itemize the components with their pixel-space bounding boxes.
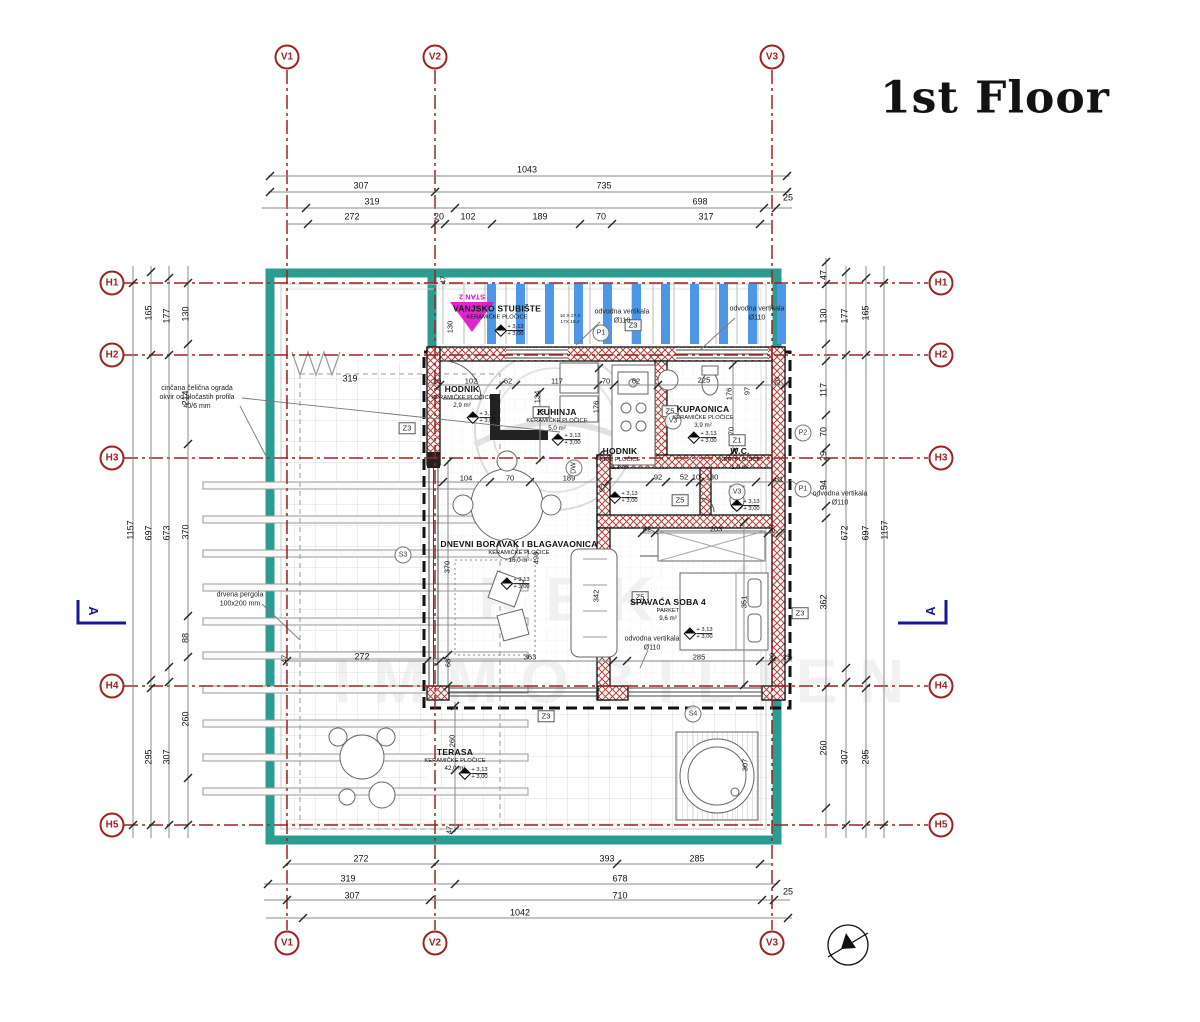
- ref-label-p1: P1: [593, 325, 610, 342]
- dimension-label: 295: [145, 749, 154, 764]
- dimension-label: 25: [783, 888, 793, 897]
- room-name: VANJSKO STUBIŠTE: [453, 305, 541, 315]
- dimension-label: 1042: [510, 909, 530, 918]
- dimension-label: 307: [344, 892, 359, 901]
- dimension-label: 342: [592, 590, 600, 603]
- ref-label-p2: P2: [795, 425, 812, 442]
- dimension-label: 1157: [127, 520, 136, 539]
- section-letter: A: [85, 606, 101, 615]
- dimension-label: 285: [693, 653, 706, 661]
- grid-marker-h5: H5: [929, 813, 954, 838]
- annotation-note: STAN 2: [459, 292, 485, 301]
- dimension-label: 117: [551, 377, 563, 385]
- dimension-label: 130: [446, 321, 454, 334]
- zone-label-z3: Z3: [538, 710, 555, 722]
- dimension-label: 70: [602, 377, 610, 385]
- grid-marker-h2: H2: [929, 343, 954, 368]
- dimension-label: 295: [862, 749, 871, 764]
- grid-marker-h2: H2: [100, 343, 125, 368]
- dimension-label: 697: [862, 525, 871, 540]
- dimension-label: 88: [182, 633, 191, 643]
- room-label: W.C.KER. PLOČICE1,0 m²: [720, 447, 761, 471]
- annotation-note: odvodna vertikalaØ110: [625, 635, 680, 653]
- room-name: HODNIK: [431, 385, 492, 395]
- dimension-label: 285: [689, 855, 704, 864]
- dimension-label: 97: [743, 387, 751, 395]
- room-name: TERASA: [424, 748, 485, 758]
- dimension-label: 697: [145, 525, 154, 540]
- dimension-label: 62: [504, 377, 512, 385]
- dimension-label: 68: [444, 659, 452, 667]
- grid-marker-v2: V2: [423, 45, 448, 70]
- grid-marker-h1: H1: [100, 271, 125, 296]
- section-letter: A: [923, 606, 939, 615]
- dimension-label: 351: [740, 596, 748, 609]
- room-area: 2,9 m²: [431, 402, 492, 409]
- room-name: SPAVAĆA SOBA 4: [630, 598, 706, 608]
- dimension-label: 362: [820, 594, 829, 609]
- room-material: KERAMIČKE PLOČICE: [526, 418, 587, 425]
- grid-marker-v2: V2: [423, 931, 448, 956]
- level-marker-icon: [730, 500, 743, 513]
- dimension-label: 95: [598, 484, 606, 492]
- dimension-label: 203: [710, 525, 723, 533]
- dimension-label: 260: [448, 735, 456, 748]
- grid-marker-h4: H4: [929, 674, 954, 699]
- ref-label-p1: P1: [795, 481, 812, 498]
- dimension-label: 25: [783, 194, 793, 203]
- room-material: KERAMIČKE PLOČICE: [431, 395, 492, 402]
- room-material: PARKET: [630, 608, 706, 615]
- grid-marker-v3: V3: [760, 45, 785, 70]
- dimension-label: 672: [841, 525, 850, 540]
- level-marker-icon: [500, 578, 513, 591]
- room-material: KER. PLOČICE: [720, 457, 761, 464]
- dimension-label: 1043: [517, 166, 537, 175]
- floor-plan-page: REKIĆ IMMOBILIEN: [0, 0, 1200, 1022]
- annotation-note: drvena pergola100x200 mm: [217, 591, 264, 609]
- dimension-label: 678: [612, 875, 627, 884]
- dimension-label: 272: [344, 213, 359, 222]
- room-name: HODNIK: [600, 447, 641, 457]
- room-area: 3,9 m²: [672, 422, 733, 429]
- dimension-label: 70: [596, 213, 606, 222]
- room-label: DNEVNI BORAVAK I BLAGAVAONICAKERAMIČKE P…: [440, 540, 597, 564]
- dimension-label: 307: [841, 749, 850, 764]
- dimension-label: 319: [342, 375, 357, 384]
- room-material: KER. PLOČICE: [600, 457, 641, 464]
- dimension-label: 307: [163, 749, 172, 764]
- ref-label-s4: S4: [685, 706, 702, 723]
- room-area: 1,0 m²: [720, 464, 761, 471]
- dimension-label: 176: [725, 388, 733, 401]
- dimension-label: 70: [820, 427, 829, 437]
- dimension-label: 47: [439, 276, 447, 284]
- zone-label-z3: Z3: [792, 607, 809, 619]
- grid-marker-v3: V3: [760, 931, 785, 956]
- room-area: 5,0 m²: [526, 425, 587, 432]
- level-marker-icon: [683, 628, 696, 641]
- dimension-label: 10: [692, 473, 700, 481]
- dimension-label: 47: [445, 826, 453, 834]
- dimension-label: 165: [145, 305, 154, 320]
- dimension-label: 20: [433, 377, 441, 385]
- drawing-title: 1st Floor: [880, 73, 1110, 124]
- labels-layer: 1st Floor 104330773531969825272201021897…: [0, 0, 1200, 1022]
- dimension-label: 177: [841, 308, 850, 323]
- grid-marker-h5: H5: [100, 813, 125, 838]
- room-label: HODNIKKER. PLOČICE1,3 m²: [600, 447, 641, 471]
- dimension-label: 134: [533, 391, 541, 404]
- ref-label-s3: S3: [395, 547, 412, 564]
- annotation-note: cinčana čelična ogradaokvir od pločastih…: [159, 385, 234, 411]
- dimension-label: 1157: [881, 520, 890, 539]
- dimension-label: 20: [434, 213, 444, 222]
- dimension-label: 102: [460, 213, 475, 222]
- dimension-label: 710: [612, 892, 627, 901]
- dimension-label: 319: [340, 875, 355, 884]
- dimension-label: 130: [820, 308, 829, 323]
- dimension-label: 70: [506, 474, 514, 482]
- room-area: 1,3 m²: [600, 464, 641, 471]
- dimension-label: 82: [643, 525, 651, 533]
- dimension-label: 52: [680, 473, 688, 481]
- grid-marker-h4: H4: [100, 674, 125, 699]
- level-marker-icon: [494, 325, 507, 338]
- dimension-label: 225: [698, 376, 711, 384]
- dimension-label: 130: [182, 306, 191, 321]
- level-marker: + 3,13+ 3,00: [496, 324, 523, 338]
- room-label: HODNIKKERAMIČKE PLOČICE2,9 m²: [431, 385, 492, 409]
- dimension-label: 317: [698, 213, 713, 222]
- level-marker-icon: [608, 492, 621, 505]
- dimension-label: 307: [353, 182, 368, 191]
- dimension-label: 698: [692, 198, 707, 207]
- dimension-label: 189: [532, 213, 547, 222]
- dimension-label: 20: [773, 377, 781, 385]
- room-material: KERAMIČKE PLOČICE: [424, 758, 485, 765]
- level-marker-icon: [687, 432, 700, 445]
- dimension-label: 47: [280, 655, 288, 663]
- room-area: 9,6 m²: [630, 615, 706, 622]
- room-name: DNEVNI BORAVAK I BLAGAVAONICA: [440, 540, 597, 550]
- level-marker: + 3,13+ 3,00: [732, 499, 759, 513]
- level-marker-icon: [466, 412, 479, 425]
- room-label: VANJSKO STUBIŠTEKERAMIČKE PLOČICE: [453, 305, 541, 322]
- room-material: KERAMIČKE PLOČICE: [672, 415, 733, 422]
- annotation-note: odvodna vertikalaØ110: [595, 308, 650, 326]
- dimension-label: 272: [354, 653, 369, 662]
- room-label: KUHINJAKERAMIČKE PLOČICE5,0 m²: [526, 408, 587, 432]
- room-label: SPAVAĆA SOBA 4PARKET9,6 m²: [630, 598, 706, 622]
- dimension-label: 104: [460, 474, 473, 482]
- dimension-label: 130: [706, 473, 719, 481]
- zone-label-z3: Z3: [399, 422, 416, 434]
- dimension-label: 25: [783, 653, 791, 661]
- room-name: KUPAONICA: [672, 405, 733, 415]
- grid-marker-h3: H3: [929, 446, 954, 471]
- annotation-note: 16 X 27,017X 18,2: [560, 314, 581, 326]
- dimension-label: 20: [768, 525, 776, 533]
- dimension-label: 92: [654, 473, 662, 481]
- level-marker: + 3,13+ 3,00: [610, 491, 637, 505]
- dimension-label: 176: [592, 401, 600, 414]
- dimension-label: 673: [163, 525, 172, 540]
- dimension-label: 272: [353, 855, 368, 864]
- dimension-label: 29: [820, 451, 829, 461]
- ref-label-v3: V3: [729, 484, 746, 501]
- grid-marker-h1: H1: [929, 271, 954, 296]
- dimension-label: 260: [182, 711, 191, 726]
- level-marker: + 3,13+ 3,00: [468, 411, 495, 425]
- annotation-note: odvodna vertikalaØ110: [813, 490, 868, 508]
- dimension-label: 177: [163, 308, 172, 323]
- dimension-label: 370: [182, 524, 191, 539]
- level-marker-icon: [551, 434, 564, 447]
- level-marker: + 3,13+ 3,00: [685, 627, 712, 641]
- grid-marker-h3: H3: [100, 446, 125, 471]
- dimension-label: 62: [632, 377, 640, 385]
- zone-label-z5: Z5: [672, 494, 689, 506]
- level-marker-icon: [458, 768, 471, 781]
- room-material: KERAMIČKE PLOČICE: [440, 550, 597, 557]
- dimension-label: 735: [596, 182, 611, 191]
- dimension-label: 363: [524, 653, 537, 661]
- dimension-label: 319: [364, 198, 379, 207]
- grid-marker-v1: V1: [275, 931, 300, 956]
- dimension-label: 260: [820, 740, 829, 755]
- level-marker: + 3,13+ 3,00: [553, 433, 580, 447]
- ref-label-dw: DW: [566, 460, 583, 477]
- dimension-label: 165: [862, 305, 871, 320]
- room-label: KUPAONICAKERAMIČKE PLOČICE3,9 m²: [672, 405, 733, 429]
- dimension-label: 47: [820, 270, 829, 280]
- grid-marker-v1: V1: [275, 45, 300, 70]
- dimension-label: 393: [599, 855, 614, 864]
- room-area: 16,0 m²: [440, 557, 597, 564]
- dimension-label: 117: [820, 383, 829, 397]
- zone-label-z1: Z1: [729, 434, 746, 446]
- level-marker: + 3,13+ 3,00: [689, 431, 716, 445]
- room-name: KUHINJA: [526, 408, 587, 418]
- room-material: KERAMIČKE PLOČICE: [453, 314, 541, 321]
- dimension-label: 20: [768, 653, 776, 661]
- level-marker: + 3,13+ 3,00: [460, 767, 487, 781]
- level-marker: + 3,13+ 3,00: [502, 577, 529, 591]
- annotation-note: odvodna vertikalaØ110: [730, 305, 785, 323]
- dimension-label: 31: [775, 475, 783, 483]
- room-name: W.C.: [720, 447, 761, 457]
- dimension-label: 307: [741, 759, 749, 772]
- dimension-label: 94: [820, 480, 829, 490]
